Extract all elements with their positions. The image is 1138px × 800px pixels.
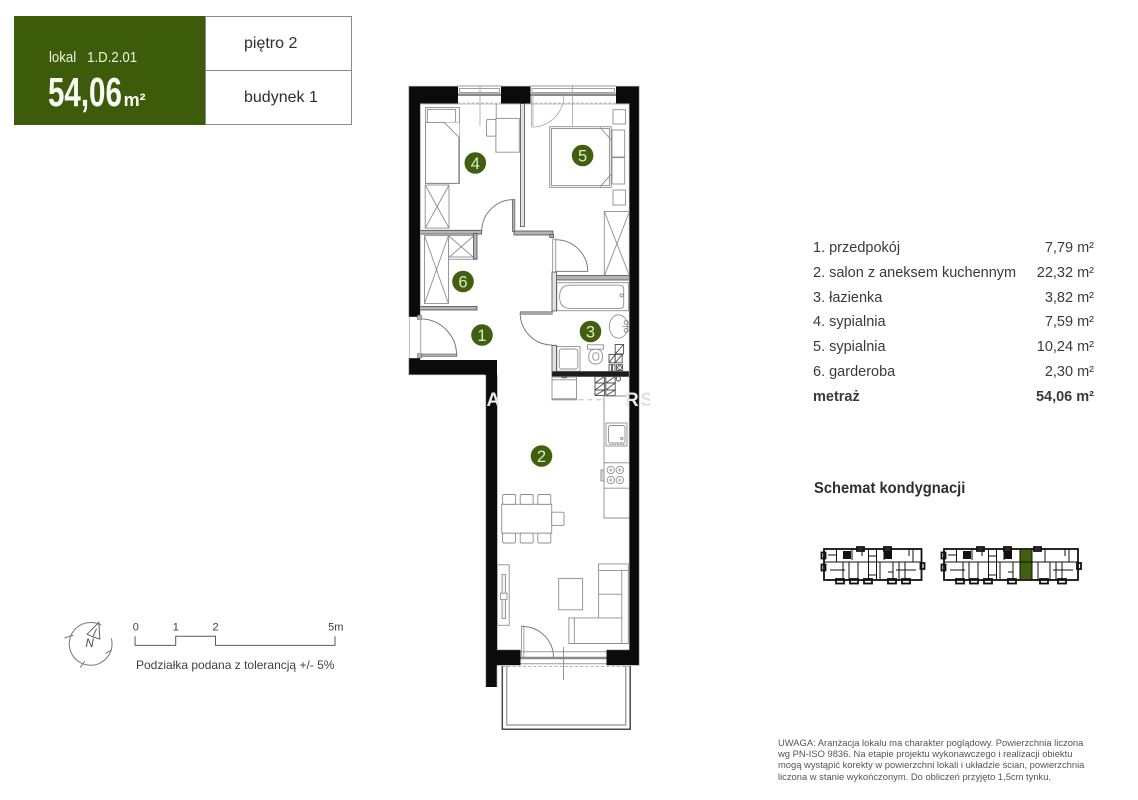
- svg-text:1: 1: [173, 622, 179, 634]
- svg-text:S: S: [641, 390, 651, 411]
- svg-text:N: N: [86, 638, 95, 650]
- svg-text:4: 4: [471, 155, 480, 173]
- svg-text:6: 6: [458, 274, 467, 292]
- svg-text:1: 1: [477, 327, 486, 345]
- svg-text:3: 3: [586, 324, 595, 342]
- svg-text:R: R: [625, 390, 639, 411]
- svg-text:2: 2: [213, 622, 219, 634]
- svg-text:0: 0: [133, 622, 139, 634]
- svg-text:A: A: [487, 390, 501, 411]
- svg-text:5: 5: [578, 148, 587, 166]
- svg-text:5m: 5m: [328, 622, 343, 634]
- svg-text:2: 2: [537, 448, 546, 466]
